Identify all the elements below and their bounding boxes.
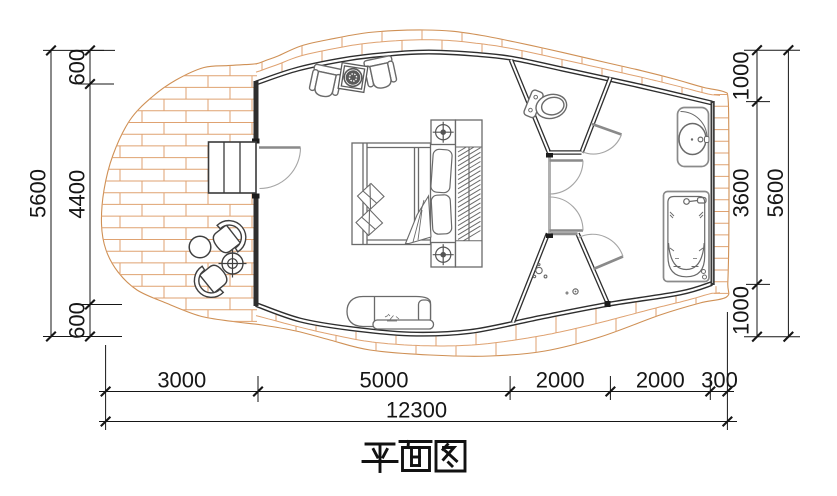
svg-text:1000: 1000 xyxy=(729,51,754,100)
svg-text:5000: 5000 xyxy=(360,368,409,393)
svg-text:300: 300 xyxy=(701,368,738,393)
svg-text:2000: 2000 xyxy=(636,368,685,393)
svg-text:5600: 5600 xyxy=(26,169,51,218)
svg-text:600: 600 xyxy=(65,49,90,86)
svg-text:3000: 3000 xyxy=(157,368,206,393)
svg-text:1000: 1000 xyxy=(729,286,754,335)
svg-text:4400: 4400 xyxy=(65,170,90,219)
svg-text:5600: 5600 xyxy=(763,169,788,218)
svg-text:3600: 3600 xyxy=(729,169,754,218)
svg-text:600: 600 xyxy=(65,302,90,339)
svg-text:12300: 12300 xyxy=(386,398,447,423)
svg-text:2000: 2000 xyxy=(536,368,585,393)
